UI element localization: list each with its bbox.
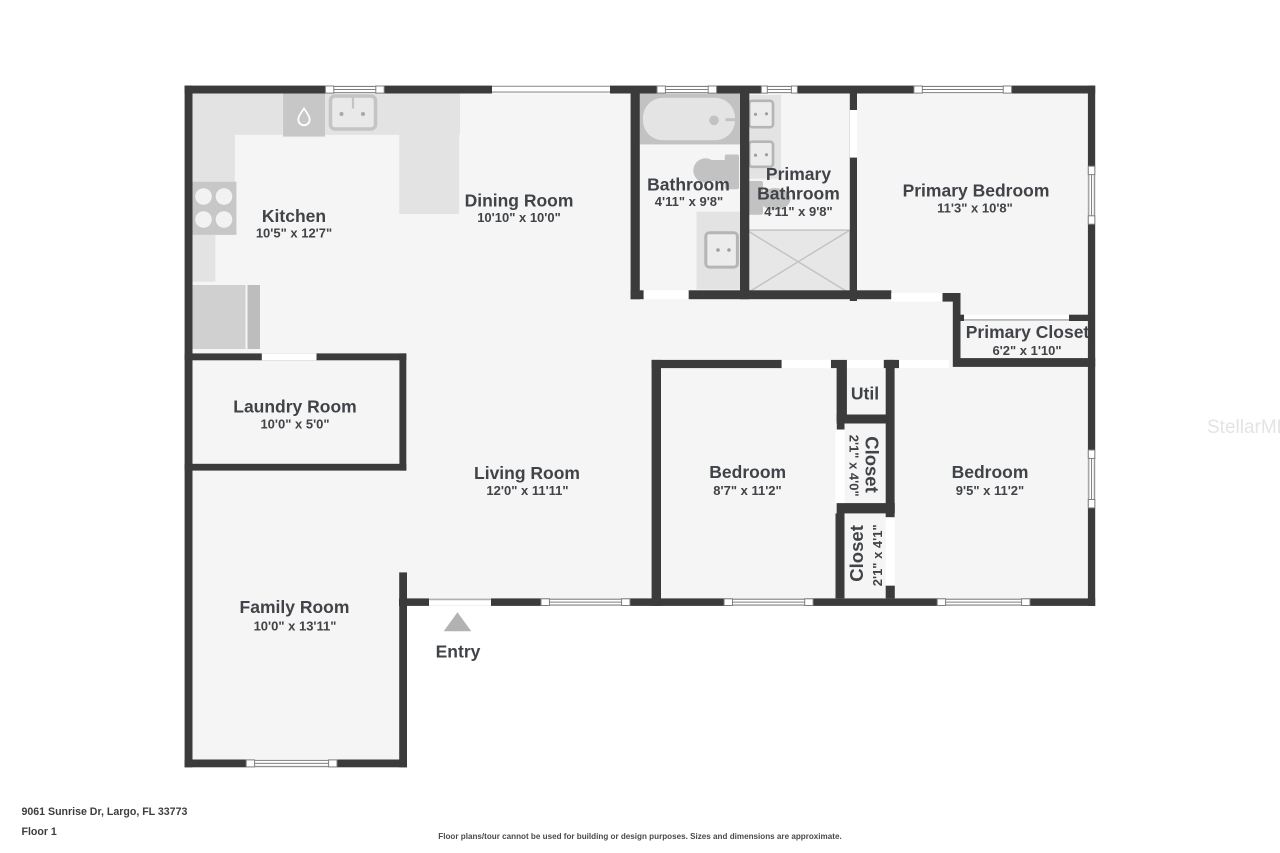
svg-text:Laundry Room: Laundry Room: [233, 396, 356, 416]
svg-text:9'5" x 11'2": 9'5" x 11'2": [956, 483, 1024, 498]
svg-text:Util: Util: [851, 383, 879, 403]
svg-text:10'5" x 12'7": 10'5" x 12'7": [256, 226, 332, 241]
svg-text:2'1" x 4'1": 2'1" x 4'1": [870, 524, 885, 586]
svg-text:Floor 1: Floor 1: [22, 826, 57, 838]
svg-text:Floor plans/tour cannot be use: Floor plans/tour cannot be used for buil…: [438, 832, 841, 841]
svg-text:4'11" x 9'8": 4'11" x 9'8": [764, 204, 832, 219]
svg-text:Family Room: Family Room: [240, 597, 350, 617]
svg-text:4'11" x 9'8": 4'11" x 9'8": [655, 194, 723, 209]
svg-text:8'7" x 11'2": 8'7" x 11'2": [713, 483, 781, 498]
svg-text:Primary: Primary: [766, 164, 831, 184]
svg-text:StellarMLS: StellarMLS: [1207, 417, 1280, 438]
svg-text:Closet: Closet: [862, 436, 883, 493]
svg-text:11'3" x 10'8": 11'3" x 10'8": [937, 201, 1013, 216]
svg-text:6'2" x 1'10": 6'2" x 1'10": [992, 343, 1061, 358]
svg-text:12'0" x 11'11": 12'0" x 11'11": [486, 483, 568, 498]
svg-text:9061 Sunrise Dr, Largo, FL 337: 9061 Sunrise Dr, Largo, FL 33773: [22, 806, 188, 818]
svg-text:Primary Bedroom: Primary Bedroom: [903, 180, 1050, 200]
svg-text:2'1" x 4'0": 2'1" x 4'0": [847, 435, 862, 497]
svg-text:Primary Closet: Primary Closet: [966, 322, 1090, 342]
svg-text:Closet: Closet: [846, 525, 867, 582]
svg-text:10'0" x 5'0": 10'0" x 5'0": [260, 417, 329, 432]
svg-text:10'10" x 10'0": 10'10" x 10'0": [477, 210, 561, 225]
svg-text:Kitchen: Kitchen: [262, 206, 326, 226]
svg-text:Bathroom: Bathroom: [647, 174, 730, 194]
svg-text:Bedroom: Bedroom: [952, 462, 1029, 482]
svg-text:Bathroom: Bathroom: [757, 183, 840, 203]
svg-text:10'0" x 13'11": 10'0" x 13'11": [254, 619, 337, 634]
svg-text:Bedroom: Bedroom: [709, 462, 786, 482]
svg-text:Dining Room: Dining Room: [465, 190, 574, 210]
svg-text:Entry: Entry: [436, 642, 481, 662]
svg-text:Living Room: Living Room: [474, 463, 580, 483]
